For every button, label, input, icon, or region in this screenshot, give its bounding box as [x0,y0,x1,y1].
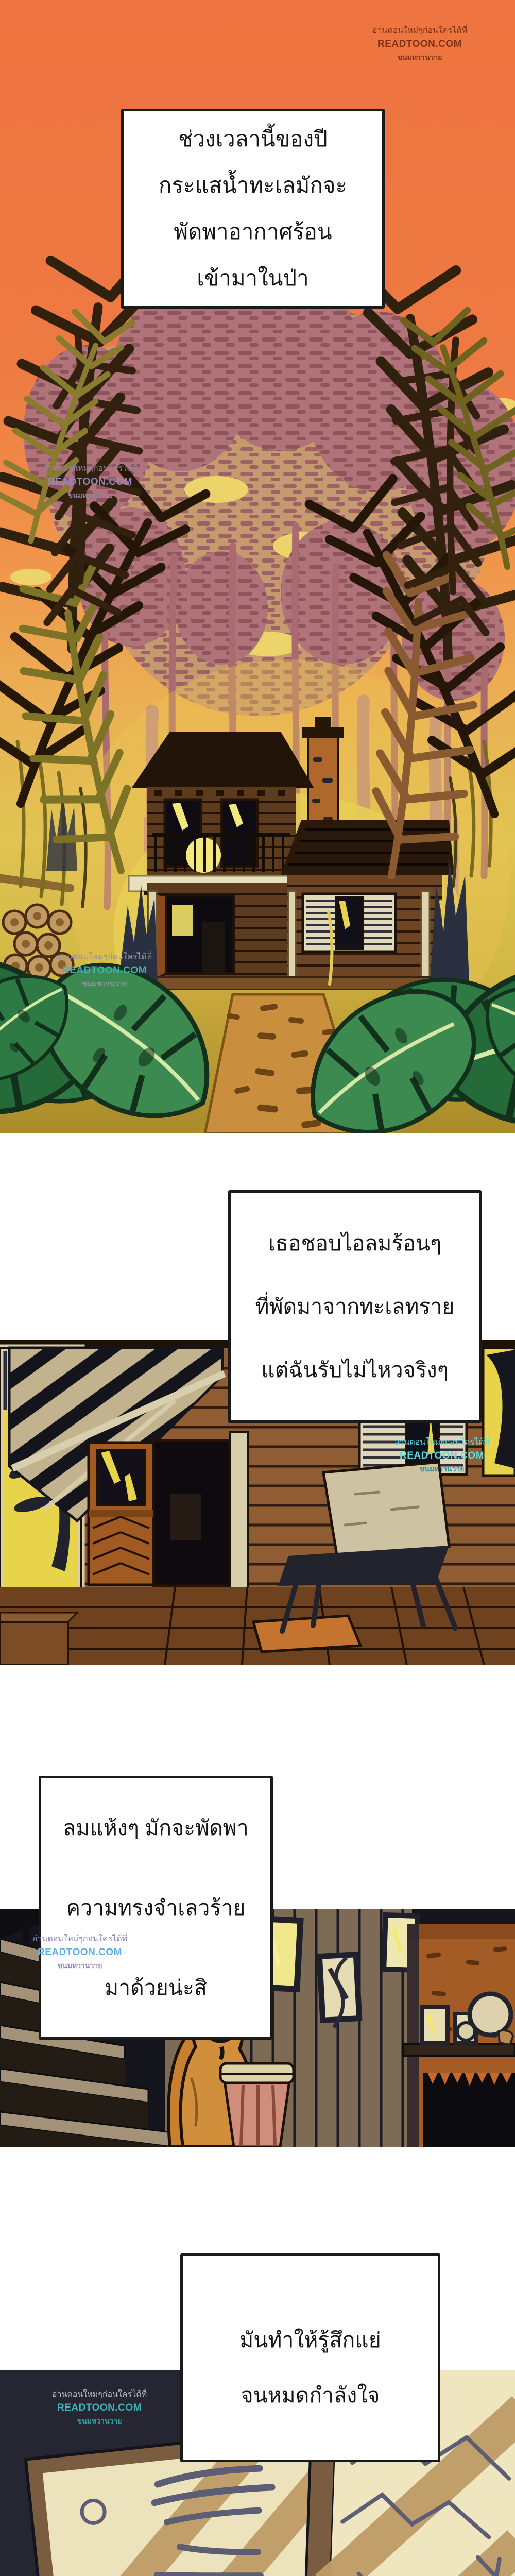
narration-line: มันทำให้รู้สึกแย่ [239,2324,381,2357]
right-lit-window [483,1348,515,1476]
narration-box-1: ช่วงเวลานี้ของปี กระแสน้ำทะเลมักจะ พัดพา… [121,109,385,309]
porch-door [89,1440,230,1586]
chimney [308,737,338,832]
narration-line: แต่ฉันรับไม่ไหวจริงๆ [261,1353,448,1387]
mantel [403,2044,515,2056]
fireplace [403,1924,515,2147]
narration-line: ความทรงจำเลวร้าย [66,1891,246,1925]
narration-line: พัดพาอากาศร้อน [174,215,332,249]
narration-line: เธอชอบไอลมร้อนๆ [268,1227,441,1260]
narration-line: ลมแห้งๆ มักจะพัดพา [63,1811,249,1845]
narration-line: ช่วงเวลานี้ของปี [178,122,328,156]
conga-drum [220,2063,294,2147]
narration-box-2: เธอชอบไอลมร้อนๆ ที่พัดมาจากทะเลทราย แต่ฉ… [228,1190,482,1423]
narration-line: มาด้วยน่ะสิ [105,1971,207,2005]
narration-line: เข้ามาในป่า [197,261,308,295]
webtoon-page: ช่วงเวลานี้ของปี กระแสน้ำทะเลมักจะ พัดพา… [0,0,515,2576]
narration-line: ที่พัดมาจากทะเลทราย [255,1290,455,1324]
door-mat [253,1616,360,1652]
narration-line: กระแสน้ำทะเลมักจะ [159,168,347,202]
wing-roof [281,820,454,875]
narration-box-4: มันทำให้รู้สึกแย่ จนหมดกำลังใจ [180,2253,440,2462]
narration-line: จนหมดกำลังใจ [241,2379,380,2412]
narration-box-3: ลมแห้งๆ มักจะพัดพา ความทรงจำเลวร้าย มาด้… [39,1776,273,2040]
